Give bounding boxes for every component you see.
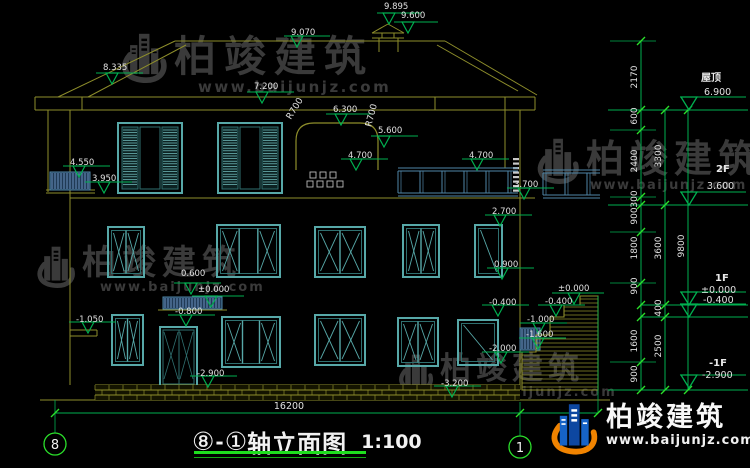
brand-logo-icon: [544, 396, 602, 462]
railing: [398, 168, 518, 196]
svg-text:-1.600: -1.600: [526, 330, 553, 340]
svg-text:9.070: 9.070: [291, 28, 315, 38]
svg-text:300: 300: [630, 190, 640, 207]
brand-name: 柏竣建筑: [606, 404, 750, 431]
svg-text:-2.900: -2.900: [702, 370, 733, 381]
svg-text:4.550: 4.550: [70, 158, 94, 168]
svg-text:1F: 1F: [715, 273, 729, 284]
window: [458, 320, 498, 365]
svg-text:0.600: 0.600: [181, 269, 205, 279]
svg-text:4.700: 4.700: [469, 151, 493, 161]
svg-text:600: 600: [630, 107, 640, 124]
vent-blocks: [307, 172, 343, 187]
svg-text:3.700: 3.700: [514, 180, 538, 190]
shutter-window: [218, 123, 282, 193]
svg-text:-1F: -1F: [709, 358, 727, 369]
svg-text:6.900: 6.900: [704, 87, 731, 98]
window: [112, 315, 143, 365]
window: [315, 315, 365, 365]
window: [398, 318, 438, 366]
svg-text:3.600: 3.600: [707, 181, 734, 192]
railing: [543, 170, 600, 198]
window: [403, 225, 439, 277]
svg-text:-1.050: -1.050: [76, 315, 103, 325]
svg-text:2F: 2F: [716, 164, 730, 175]
brand-logo: 柏竣建筑 www.baijunjz.com: [544, 396, 750, 462]
svg-text:2.700: 2.700: [492, 207, 516, 217]
svg-text:2400: 2400: [630, 149, 640, 172]
svg-text:7.200: 7.200: [254, 82, 278, 92]
svg-text:-2.000: -2.000: [489, 344, 516, 354]
svg-text:±0.000: ±0.000: [198, 285, 229, 295]
svg-text:-0.800: -0.800: [175, 307, 202, 317]
svg-text:-2.900: -2.900: [197, 369, 224, 379]
svg-text:9.600: 9.600: [401, 11, 425, 21]
svg-text:3600: 3600: [654, 236, 664, 259]
title-underline-thin: [194, 457, 366, 458]
svg-text:-3.200: -3.200: [441, 379, 468, 389]
svg-text:3.950: 3.950: [92, 174, 116, 184]
title-underline: [194, 451, 366, 454]
svg-text:3300: 3300: [654, 144, 664, 167]
svg-text:2170: 2170: [630, 65, 640, 88]
svg-text:2500: 2500: [654, 334, 664, 357]
svg-text:1600: 1600: [630, 329, 640, 352]
svg-text:900: 900: [630, 365, 640, 382]
svg-text:±0.000: ±0.000: [558, 284, 589, 294]
entry-door: [160, 327, 197, 387]
svg-text:900: 900: [630, 207, 640, 224]
elevation-drawing-canvas: 柏竣建筑 www.baijunjz.com 柏竣建筑 www.baijunjz.…: [0, 0, 750, 468]
svg-text:0.900: 0.900: [494, 260, 518, 270]
svg-text:-0.400: -0.400: [545, 297, 572, 307]
title-dash: -: [215, 430, 223, 454]
level-markers: 屋顶6.9002F3.6001F±0.000-0.400-1F-2.900: [680, 72, 746, 388]
window: [217, 225, 280, 277]
svg-text:16200: 16200: [274, 401, 304, 412]
svg-text:8: 8: [51, 438, 59, 453]
svg-text:-1.000: -1.000: [527, 315, 554, 325]
window: [315, 227, 365, 277]
svg-text:-0.400: -0.400: [703, 295, 734, 306]
svg-text:9800: 9800: [677, 234, 687, 257]
title-scale: 1:100: [361, 431, 421, 453]
svg-text:1800: 1800: [630, 236, 640, 259]
svg-text:R700: R700: [364, 103, 380, 128]
canopy-hatch: [50, 172, 90, 190]
brand-url: www.baijunjz.com: [606, 433, 750, 448]
svg-text:900: 900: [630, 277, 640, 294]
svg-text:8.335: 8.335: [103, 63, 127, 73]
svg-text:屋顶: 屋顶: [701, 72, 721, 84]
svg-text:6.300: 6.300: [333, 105, 357, 115]
window: [222, 317, 280, 367]
window: [108, 227, 144, 277]
elevation-markers: 9.8959.6009.0708.3357.2006.3005.6004.700…: [63, 2, 604, 397]
svg-text:R700: R700: [285, 96, 306, 121]
svg-text:1: 1: [516, 441, 524, 456]
svg-text:400: 400: [654, 299, 664, 316]
svg-text:-0.400: -0.400: [489, 298, 516, 308]
svg-text:5.600: 5.600: [378, 126, 402, 136]
svg-text:4.700: 4.700: [348, 151, 372, 161]
